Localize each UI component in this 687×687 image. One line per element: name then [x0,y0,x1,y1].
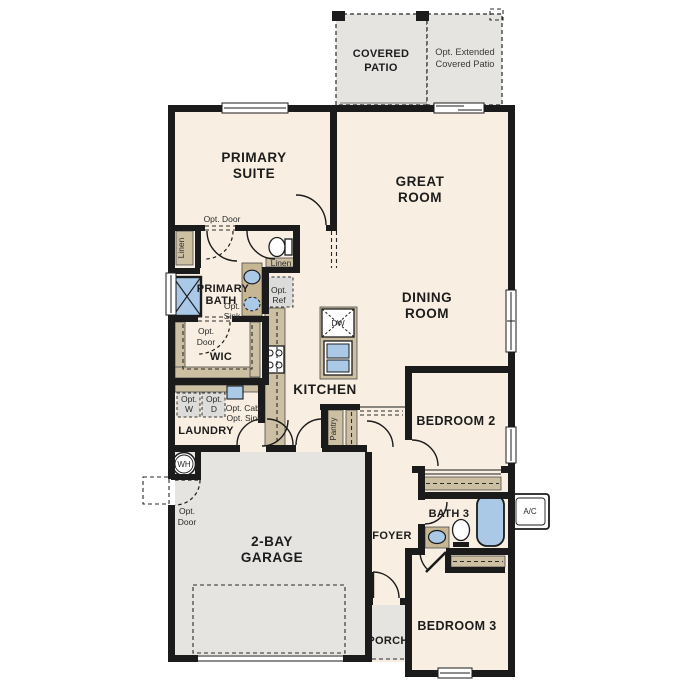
primary-suite-window [222,103,288,113]
label-covered-patio: COVERED [353,48,410,60]
label-covered-patio-2: PATIO [364,62,398,74]
label-opt-ref-2: Ref [272,295,286,305]
floor-plan-page: COVERED PATIO Opt. Extended Covered Pati… [0,0,687,687]
label-opt-d-2: D [211,404,217,414]
porch-floor [372,605,405,660]
bedroom2-window [506,427,516,463]
label-linen-left: Linen [176,237,186,258]
label-garage: 2-BAY [251,534,293,549]
optional-sink [244,297,260,311]
label-opt-ref: Opt. [271,285,287,295]
label-primary-suite: PRIMARY [221,150,286,165]
label-opt-cab: Opt. Cab/ [226,403,263,413]
label-opt-door-garage-2: Door [178,517,197,527]
label-garage-2: GARAGE [241,550,303,565]
laundry-counter [175,385,267,392]
label-opt-cab-sink: Opt. Sink [227,413,263,423]
label-opt-door-wic: Opt. [198,326,214,336]
label-bedroom2: BEDROOM 2 [416,414,495,428]
dining-window [506,290,516,352]
label-primary-bath: PRIMARY [197,283,250,295]
label-opt-patio: Opt. Extended [435,47,494,57]
label-opt-w: Opt. [181,394,197,404]
primary-toilet [269,238,292,257]
label-bedroom3: BEDROOM 3 [417,619,496,633]
island-sink [324,341,352,375]
label-laundry: LAUNDRY [178,425,234,437]
label-ac: A/C [523,507,537,516]
bath3-toilet [453,520,470,548]
bedroom3-window [438,668,472,678]
label-kitchen: KITCHEN [293,382,357,397]
laundry-sink [227,386,243,399]
patio-post [416,11,429,21]
label-pantry: Pantry [329,417,338,440]
label-bath3: BATH 3 [429,508,470,520]
label-dining-room: DINING [402,290,452,305]
bath-window [166,273,176,315]
label-opt-door-garage: Opt. [179,506,195,516]
bath3-sink [429,531,446,544]
bathtub [477,495,504,546]
label-opt-sink-2: Sink [224,311,241,321]
label-wic: WIC [210,351,232,363]
label-opt-door-wic-2: Door [197,337,216,347]
label-linen-right: Linen [271,258,292,268]
label-great-room-2: ROOM [398,190,442,205]
vanity-sink [244,270,260,284]
patio-post [332,11,345,21]
label-foyer: FOYER [372,530,411,542]
label-porch: PORCH [367,635,408,647]
floor-plan: COVERED PATIO Opt. Extended Covered Pati… [0,0,687,687]
label-primary-suite-2: SUITE [233,166,275,181]
label-opt-patio-2: Covered Patio [436,59,495,69]
label-opt-w-2: W [185,404,193,414]
label-dining-room-2: ROOM [405,306,449,321]
label-opt-sink: Opt. [224,301,240,311]
label-wh: WH [177,460,191,469]
label-opt-door-suite: Opt. Door [204,214,241,224]
opt-door-pad [143,477,169,504]
label-dw: DW [331,319,345,328]
label-opt-d: Opt. [206,394,222,404]
patio-sliding-door [434,103,484,113]
label-great-room: GREAT [396,174,445,189]
